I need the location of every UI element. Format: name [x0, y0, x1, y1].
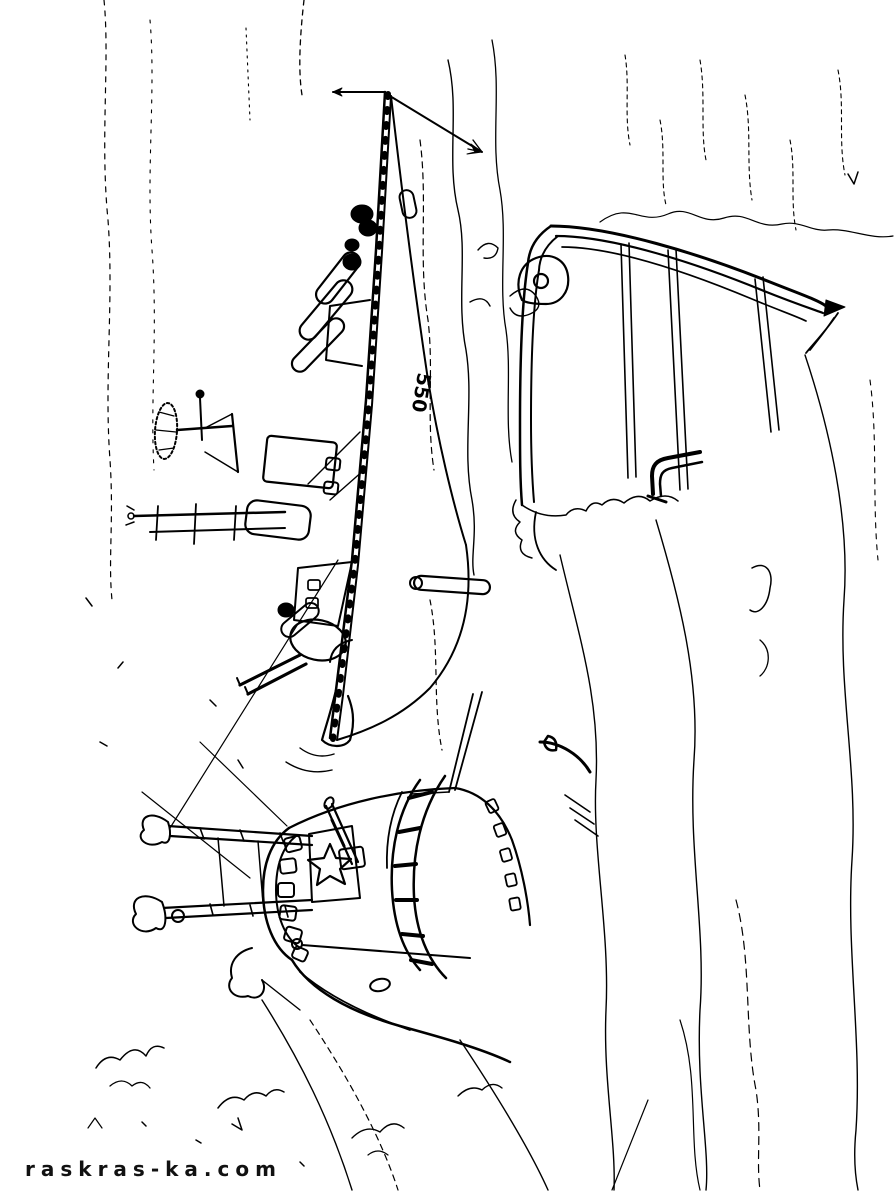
aft-turret [237, 600, 350, 694]
collar-bands [387, 776, 446, 978]
patrol-boat [133, 560, 598, 1190]
hawsehole [534, 274, 548, 288]
cabin-portholes [485, 798, 521, 910]
watermark-text: raskras-ka.com [25, 1157, 282, 1181]
radar-dish [153, 402, 238, 472]
cargo-ship-bow [513, 226, 858, 1190]
star-emblem [308, 844, 351, 885]
sea-battle-illustration: 550 [0, 0, 895, 1193]
coloring-page: { "page": { "background": "#ffffff", "in… [0, 0, 895, 1193]
main-mast [126, 504, 285, 544]
sea-waves [86, 0, 893, 1190]
